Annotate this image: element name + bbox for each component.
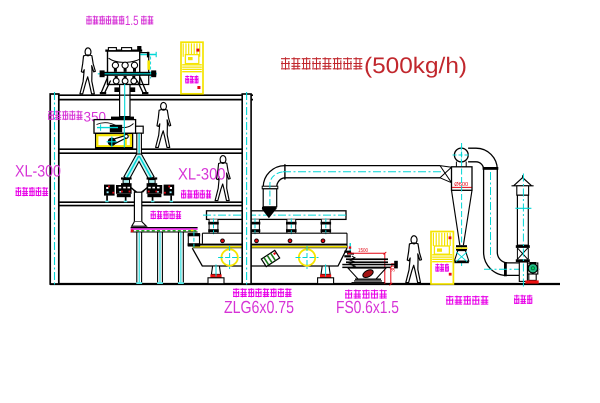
svg-text:FS0.6x1.5: FS0.6x1.5 <box>336 297 399 317</box>
svg-text:ZLG6x0.75: ZLG6x0.75 <box>224 297 294 317</box>
svg-text:XL-300: XL-300 <box>178 166 226 184</box>
svg-text:1500: 1500 <box>358 248 368 254</box>
svg-text:1.5: 1.5 <box>125 13 139 28</box>
svg-text:XL-300: XL-300 <box>15 163 61 181</box>
svg-text:(500kg/h): (500kg/h) <box>364 53 467 78</box>
